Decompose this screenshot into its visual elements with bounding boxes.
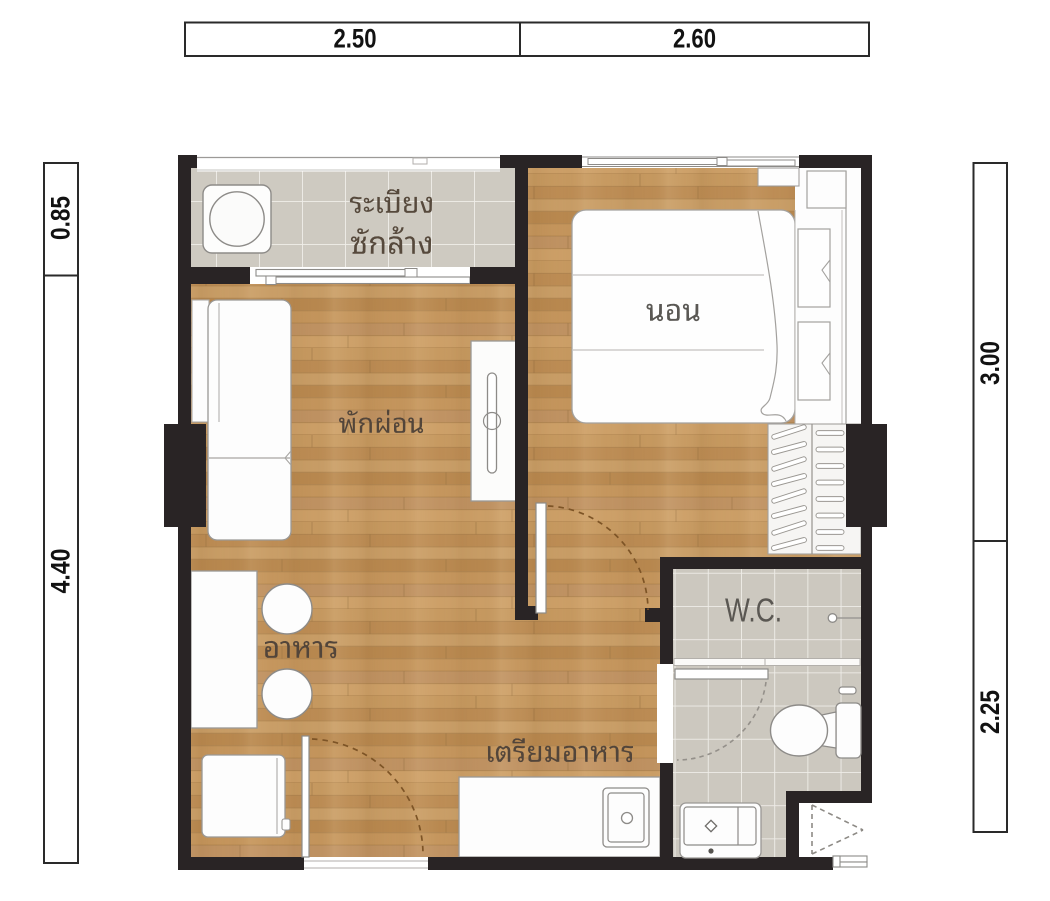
svg-text:W.C.: W.C.: [725, 593, 782, 630]
svg-text:4.40: 4.40: [46, 549, 76, 594]
svg-text:0.85: 0.85: [46, 196, 76, 240]
svg-text:3.00: 3.00: [975, 341, 1005, 385]
svg-text:2.60: 2.60: [673, 24, 716, 54]
svg-text:2.50: 2.50: [334, 24, 377, 54]
svg-text:2.25: 2.25: [975, 690, 1005, 734]
